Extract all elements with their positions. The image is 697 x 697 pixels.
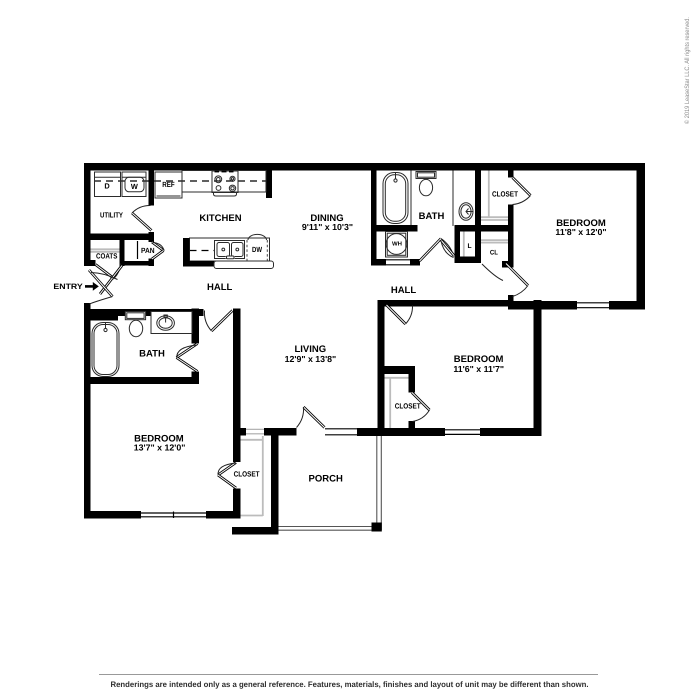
svg-text:CL: CL xyxy=(490,250,498,257)
svg-text:BATH: BATH xyxy=(419,211,445,222)
svg-text:DW: DW xyxy=(252,245,263,254)
svg-text:© 2019 LeaseStar LLC. All righ: © 2019 LeaseStar LLC. All rights reserve… xyxy=(684,17,691,124)
svg-text:HALL: HALL xyxy=(207,282,233,293)
svg-text:CLOSET: CLOSET xyxy=(492,189,518,198)
svg-text:WH: WH xyxy=(392,242,402,248)
svg-text:9'11" x 10'3": 9'11" x 10'3" xyxy=(302,222,353,232)
svg-text:COATS: COATS xyxy=(96,252,118,261)
svg-text:HALL: HALL xyxy=(391,285,417,296)
svg-text:L: L xyxy=(468,243,472,250)
svg-text:UTILITY: UTILITY xyxy=(100,211,123,220)
svg-text:PAN: PAN xyxy=(141,246,155,255)
svg-text:CLOSET: CLOSET xyxy=(234,469,260,478)
svg-text:ENTRY: ENTRY xyxy=(53,282,83,291)
svg-text:BATH: BATH xyxy=(139,348,165,359)
svg-text:13'7" x 12'0": 13'7" x 12'0" xyxy=(134,443,186,453)
svg-text:11'6" x 11'7": 11'6" x 11'7" xyxy=(453,364,504,374)
svg-text:12'9" x 13'8": 12'9" x 13'8" xyxy=(285,354,337,364)
svg-text:CLOSET: CLOSET xyxy=(395,402,421,411)
svg-text:W: W xyxy=(131,182,138,191)
svg-text:Renderings are intended only a: Renderings are intended only as a genera… xyxy=(111,680,589,689)
svg-text:D: D xyxy=(104,182,110,191)
svg-text:REF: REF xyxy=(162,180,175,189)
svg-text:KITCHEN: KITCHEN xyxy=(199,213,241,224)
svg-text:11'8" x 12'0": 11'8" x 12'0" xyxy=(555,227,606,237)
svg-text:PORCH: PORCH xyxy=(309,474,343,485)
